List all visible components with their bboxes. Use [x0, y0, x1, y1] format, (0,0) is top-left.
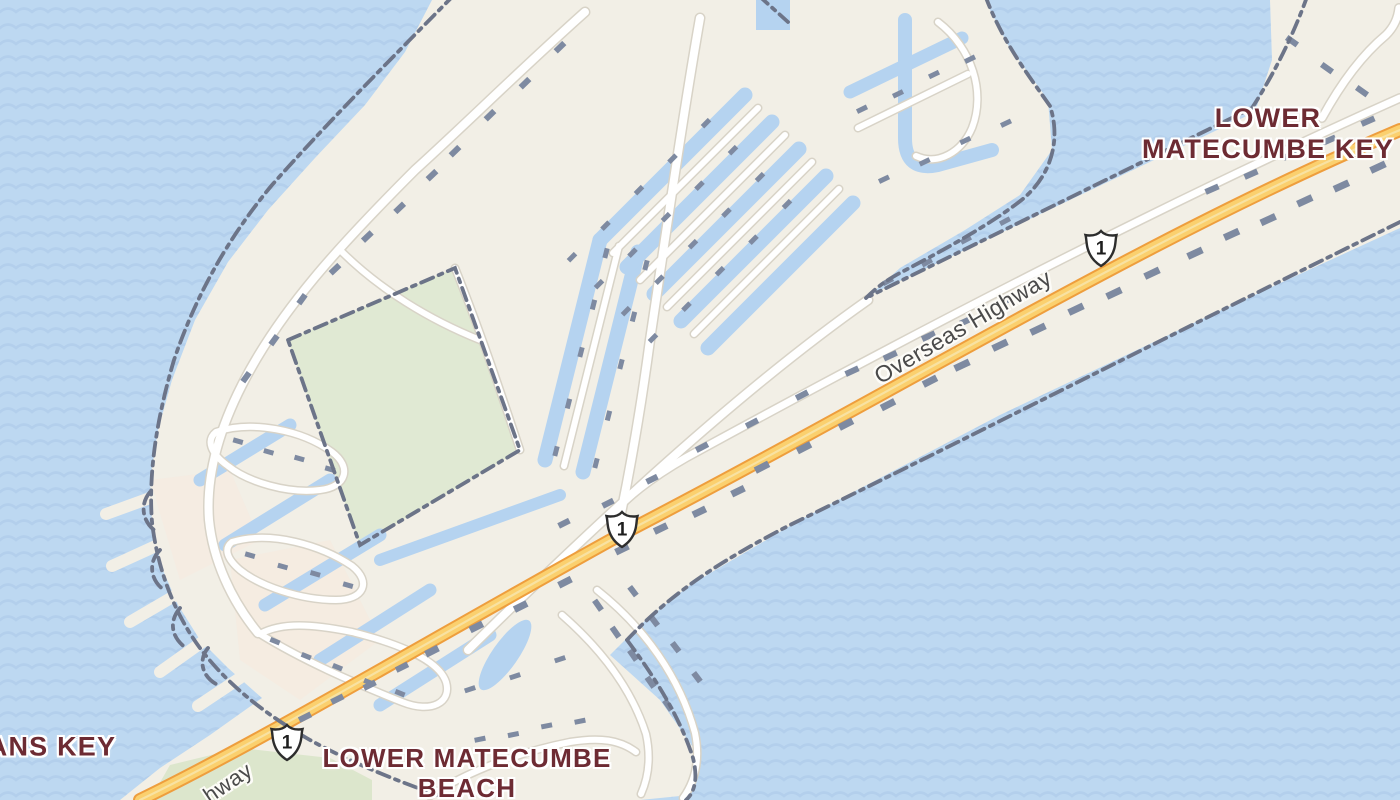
map-canvas[interactable]: LOWER MATECUMBE KEY LOWER MATECUMBE BEAC…	[0, 0, 1400, 800]
map-tiles	[0, 0, 1400, 800]
